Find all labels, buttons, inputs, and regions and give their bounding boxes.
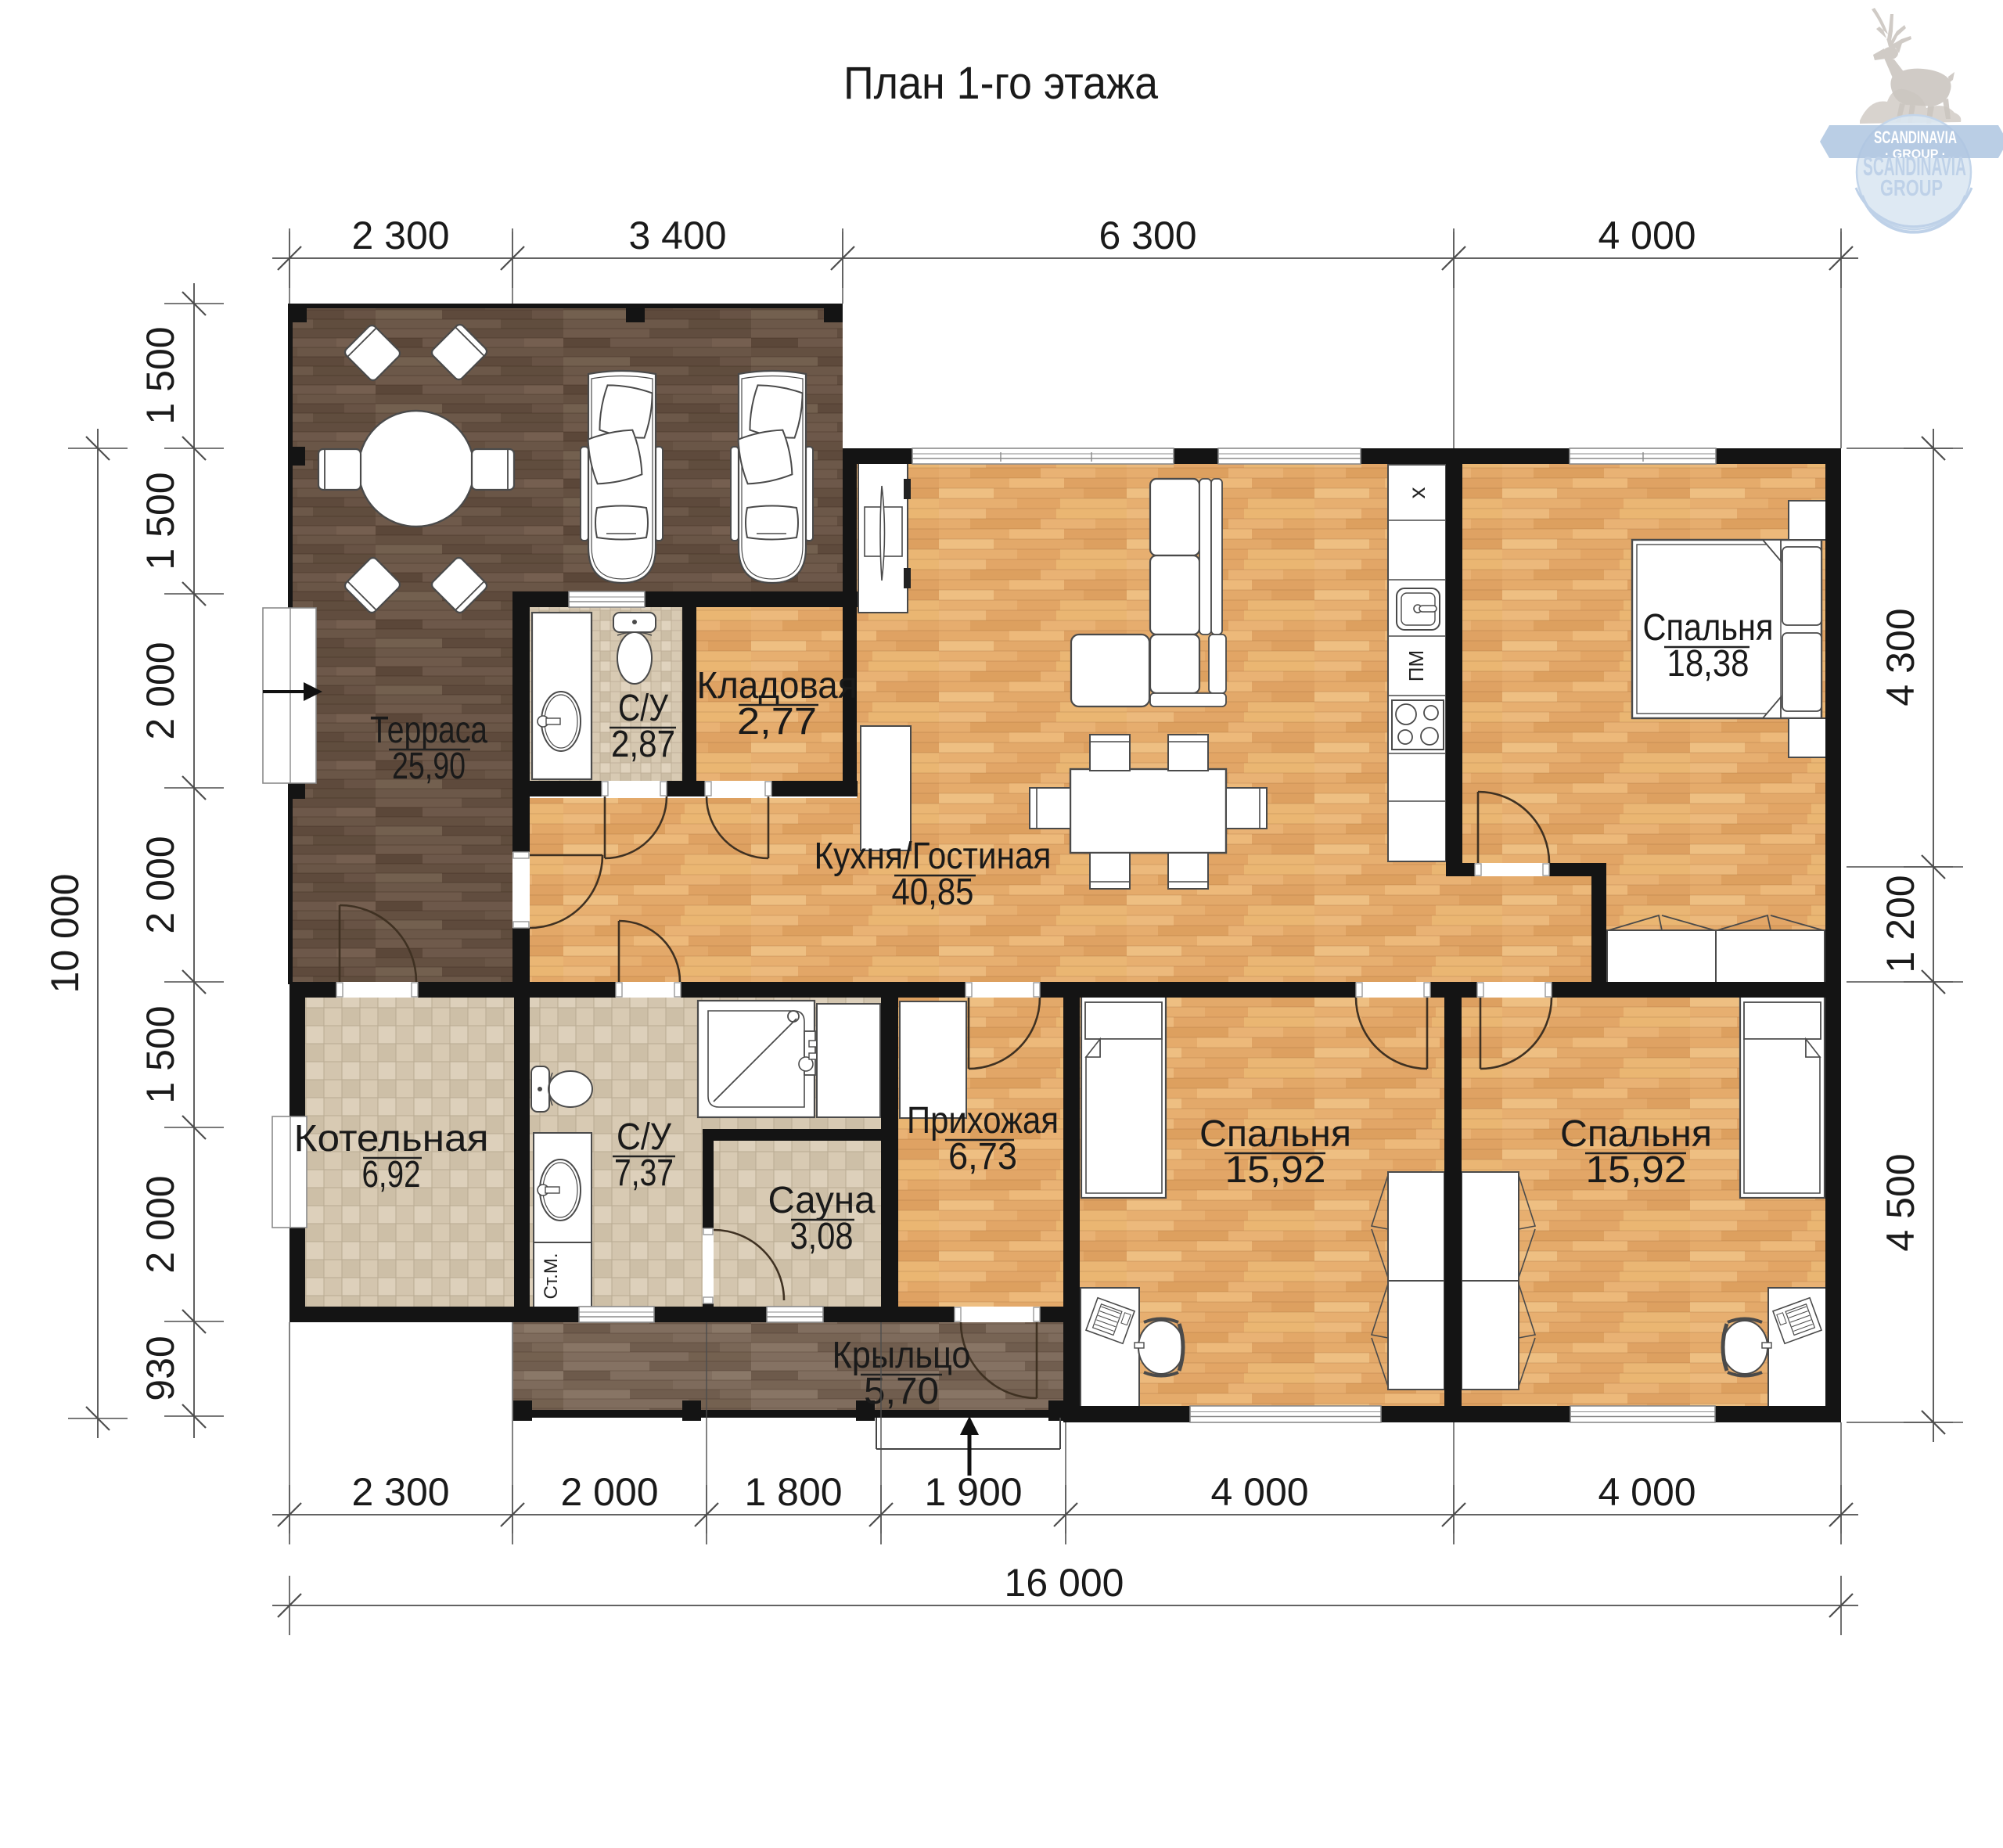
svg-text:15,92: 15,92 bbox=[1225, 1149, 1326, 1191]
svg-text:2 300: 2 300 bbox=[351, 214, 449, 257]
svg-text:GROUP: GROUP bbox=[1880, 176, 1943, 201]
svg-text:16 000: 16 000 bbox=[1005, 1561, 1124, 1605]
svg-text:4 300: 4 300 bbox=[1879, 608, 1922, 706]
svg-text:18,38: 18,38 bbox=[1667, 643, 1749, 685]
svg-text:25,90: 25,90 bbox=[392, 746, 466, 787]
svg-text:2 000: 2 000 bbox=[560, 1470, 658, 1514]
svg-text:1 900: 1 900 bbox=[924, 1470, 1022, 1514]
svg-text:15,92: 15,92 bbox=[1586, 1149, 1687, 1191]
svg-text:7,37: 7,37 bbox=[614, 1152, 674, 1194]
svg-text:40,85: 40,85 bbox=[892, 872, 974, 913]
svg-text:2 000: 2 000 bbox=[138, 642, 182, 739]
svg-text:1 800: 1 800 bbox=[744, 1470, 842, 1514]
svg-text:6,73: 6,73 bbox=[948, 1136, 1017, 1177]
svg-text:10 000: 10 000 bbox=[43, 874, 87, 994]
svg-text:4 000: 4 000 bbox=[1210, 1470, 1308, 1514]
svg-text:План 1-го этажа: План 1-го этажа bbox=[843, 58, 1159, 109]
svg-text:2 000: 2 000 bbox=[138, 1175, 182, 1273]
svg-text:4 000: 4 000 bbox=[1598, 1470, 1696, 1514]
svg-text:x: x bbox=[1404, 487, 1430, 499]
svg-text:5,70: 5,70 bbox=[864, 1371, 939, 1412]
svg-text:2 300: 2 300 bbox=[351, 1470, 449, 1514]
svg-text:3 400: 3 400 bbox=[628, 214, 726, 257]
svg-text:1 200: 1 200 bbox=[1879, 875, 1922, 973]
svg-text:SCANDINAVIA: SCANDINAVIA bbox=[1874, 128, 1957, 147]
svg-text:1 500: 1 500 bbox=[138, 326, 182, 424]
svg-text:2 000: 2 000 bbox=[138, 836, 182, 933]
svg-text:2,87: 2,87 bbox=[611, 724, 675, 765]
svg-text:6 300: 6 300 bbox=[1099, 214, 1196, 257]
svg-text:4 000: 4 000 bbox=[1598, 214, 1696, 257]
svg-text:4 500: 4 500 bbox=[1879, 1153, 1922, 1251]
svg-text:ПМ: ПМ bbox=[1404, 650, 1428, 681]
svg-text:Ст.М.: Ст.М. bbox=[541, 1253, 562, 1300]
svg-text:6,92: 6,92 bbox=[362, 1154, 421, 1195]
svg-text:1 500: 1 500 bbox=[138, 1005, 182, 1103]
svg-text:2,77: 2,77 bbox=[737, 701, 817, 742]
svg-text:3,08: 3,08 bbox=[790, 1216, 854, 1257]
svg-text:930: 930 bbox=[138, 1336, 182, 1400]
svg-text:1 500: 1 500 bbox=[138, 472, 182, 570]
